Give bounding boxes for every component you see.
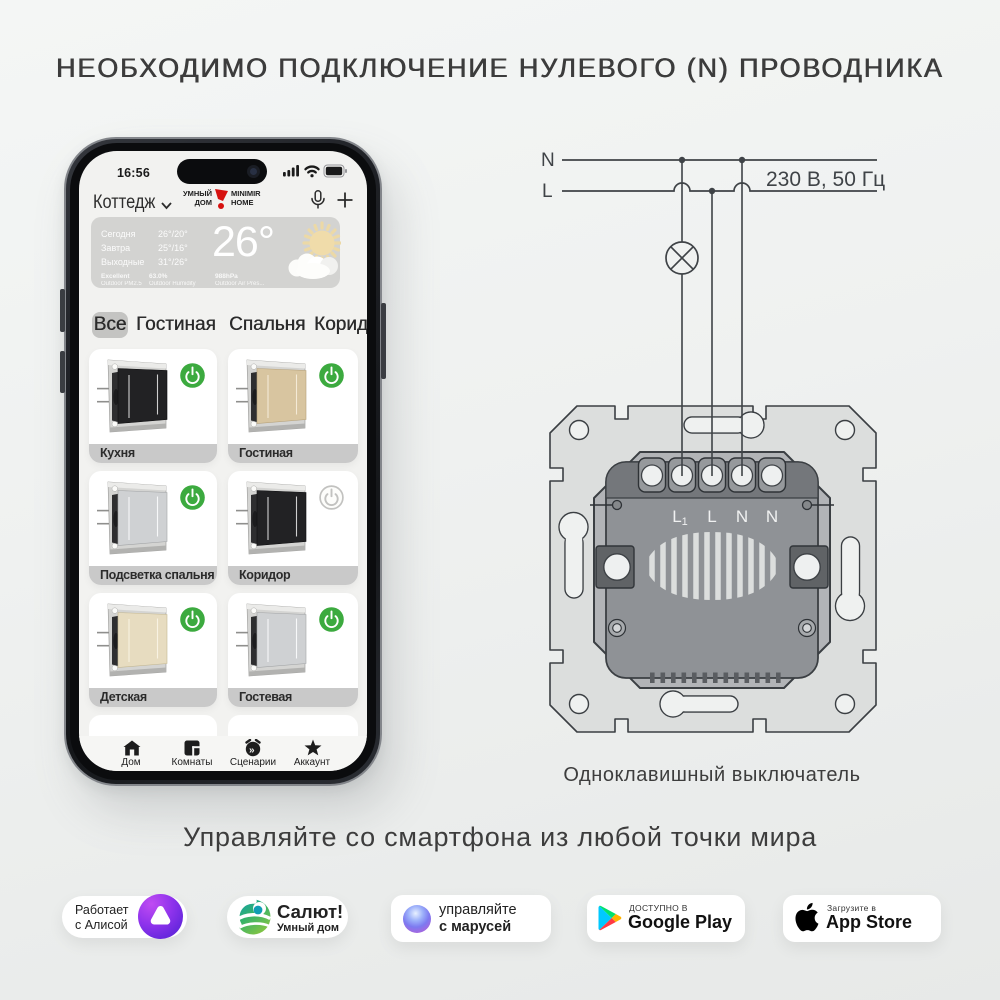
svg-text:L: L xyxy=(542,181,553,202)
svg-text:230 В, 50 Гц: 230 В, 50 Гц xyxy=(766,168,885,191)
svg-text:N: N xyxy=(766,507,778,526)
svg-text:N: N xyxy=(736,507,748,526)
svg-text:»: » xyxy=(249,745,255,756)
svg-text:N: N xyxy=(541,150,555,171)
svg-text:L: L xyxy=(707,507,716,526)
